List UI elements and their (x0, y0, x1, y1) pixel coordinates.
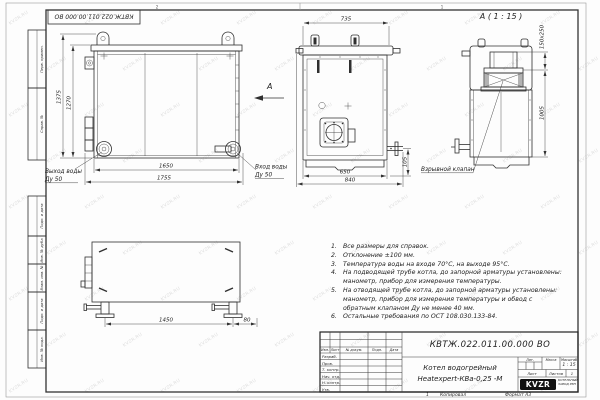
note-number: 2. (331, 252, 343, 261)
sig-row-label: Разраб. (322, 354, 337, 359)
margin-label: Справ. № (40, 115, 44, 133)
dim-105: 105 (403, 156, 409, 167)
note-number: 1. (331, 243, 343, 252)
dim-1650: 1650 (159, 164, 173, 170)
note-text: Отклонение ±100 мм. (343, 252, 565, 261)
dim-735: 735 (341, 17, 352, 23)
kvzr-logo: KVZR (520, 379, 556, 391)
lit-label: Лит. (518, 357, 542, 362)
dim-80: 80 (244, 318, 251, 324)
rivet-ticks (236, 65, 240, 130)
col-header-izm: Изм. (320, 347, 330, 353)
explosion-valve (481, 52, 526, 91)
view-arrow-label: А (266, 82, 272, 91)
outlet-label-dn: Ду 50 (44, 177, 62, 183)
rear-pipe-stub (387, 142, 403, 156)
dim-150x250: 150x250 (540, 24, 546, 49)
left-margin-boxes: Перв. примен. Справ. № Подп. и дата Инв.… (28, 30, 46, 368)
dim-1375: 1375 (57, 90, 63, 104)
note-text: На подводящей трубе котла, до запорной а… (343, 269, 565, 287)
col-header-list: Лист (330, 347, 340, 353)
document-name-line1: Котел водогрейный (423, 363, 497, 374)
note-text: Остальные требования по ОСТ 108.030.133-… (343, 313, 565, 322)
sig-row-label: Пров. (322, 361, 333, 366)
dim-1450: 1450 (159, 318, 173, 324)
dim-1005: 1005 (540, 106, 546, 120)
corner-cross-marks (101, 53, 234, 60)
right-leg (212, 302, 242, 318)
dim-1755: 1755 (157, 176, 171, 182)
sheets-value: 1 (566, 370, 578, 378)
zone-number-left: 2 (156, 5, 159, 10)
inlet-label-dn: Ду 50 (254, 173, 272, 179)
note-item: 1.Все размеры для справок. (331, 243, 565, 252)
sig-row-label: Нач. отд. (322, 374, 340, 379)
inlet-label: Вход воды (255, 165, 288, 171)
drawing-designation: КВТЖ.022.011.00.000 ВО (402, 333, 578, 356)
corner-marks (99, 249, 233, 292)
note-number: 5. (331, 287, 343, 313)
sig-row-label: Утв. (322, 387, 330, 392)
detail-pipe-stub (451, 139, 470, 153)
note-number: 4. (331, 269, 343, 287)
document-name-line2: Heatexpert-КВа-0,25 -М (418, 374, 503, 385)
note-item: 2.Отклонение ±100 мм. (331, 252, 565, 261)
zone-number-right: 1 (441, 5, 444, 10)
note-item: 5.На отводящей трубе котла, до запорной … (331, 287, 565, 313)
detail-title: А ( 1 : 15 ) (479, 12, 522, 21)
note-item: 4.На подводящей трубе котла, до запорной… (331, 269, 565, 287)
dim-1270: 1270 (67, 96, 73, 110)
margin-label: Перв. примен. (40, 45, 44, 73)
note-text: Все размеры для справок. (343, 243, 565, 252)
note-number: 3. (331, 261, 343, 270)
note-text: На отводящей трубе котла, до запорной ар… (343, 287, 565, 313)
company-name: КОТЕЛЬНЫЙ ЗАВОД РЭП (558, 379, 578, 387)
notes-list: 1.Все размеры для справок. 2.Отклонение … (331, 243, 565, 322)
col-header-docnum: № докум. (340, 347, 368, 353)
mass-label: Масса (542, 357, 560, 362)
note-number: 6. (331, 313, 343, 322)
detail-view-a: А ( 1 : 15 ) (451, 12, 532, 168)
view-direction-arrow: А (254, 82, 284, 101)
explosion-valve-label: Взрывной клапан (421, 167, 475, 173)
sig-row-label: Т. контр. (322, 367, 340, 372)
dim-840: 840 (345, 178, 356, 184)
margin-label: Инв. № подл. (40, 336, 44, 361)
left-leg (84, 302, 114, 318)
sig-row-label: Н. контр. (322, 380, 340, 385)
company-line2: ЗАВОД РЭП (558, 383, 578, 387)
footer-number: 1 (426, 393, 429, 398)
sheets-label: Листов (546, 370, 566, 378)
margin-label: Взам. инв. № (40, 265, 44, 290)
col-header-podp: Подп. (368, 347, 386, 353)
burner-flange (320, 118, 348, 147)
inlet-flange (215, 142, 241, 157)
front-view (85, 32, 242, 158)
margin-label: Инв. № дубл. (40, 237, 44, 262)
outlet-label: Выход воды (45, 169, 82, 175)
col-header-data: Дата (386, 347, 402, 353)
footer-copied-by: Копировал (440, 393, 466, 398)
margin-label: Подп. и дата (40, 203, 44, 229)
plan-view (81, 242, 242, 318)
footer-format: Формат А3 (505, 393, 531, 398)
dim-650: 650 (340, 170, 351, 176)
rivet-dots (305, 57, 386, 131)
side-view (296, 35, 403, 170)
document-name: Котел водогрейный Heatexpert-КВа-0,25 -М (402, 358, 518, 390)
scale-value: 1 : 15 (560, 362, 578, 370)
front-view-dimensions: 1375 1270 1650 1755 Выход воды Ду 50 Вхо… (44, 34, 288, 185)
sheet-label: Лист (518, 370, 546, 378)
note-item: 6.Остальные требования по ОСТ 108.030.13… (331, 313, 565, 322)
top-stamp-text: КВТЖ.022.011.00.000 ВО (54, 13, 133, 20)
margin-label: Подп. и дата (40, 298, 44, 324)
drawing-sheet: KVZR.RUKVZR.RUKVZR.RUKVZR.RUKVZR.RUKVZR.… (0, 0, 600, 400)
plan-view-dimensions: 1450 80 (105, 318, 257, 328)
